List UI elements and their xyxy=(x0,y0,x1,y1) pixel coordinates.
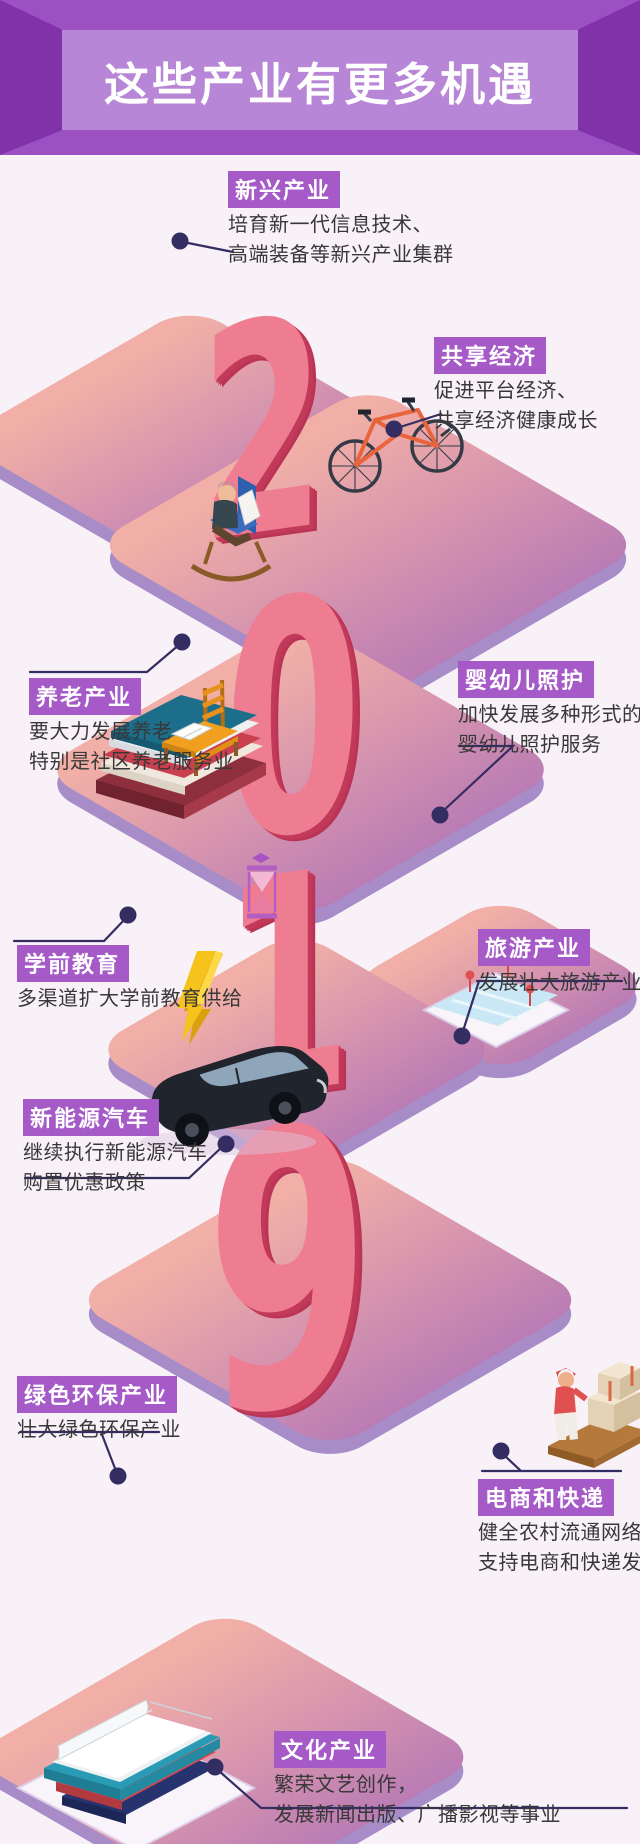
infographic-canvas: 这些产业有更多机遇 2 0 1 9 xyxy=(0,0,640,1844)
callout-title: 共享经济 xyxy=(434,337,546,374)
callout-title: 绿色环保产业 xyxy=(17,1376,177,1413)
callout-preschool-education: 学前教育 多渠道扩大学前教育供给 xyxy=(17,945,243,1012)
callout-emerging-industries: 新兴产业 培育新一代信息技术、 高端装备等新兴产业集群 xyxy=(228,171,454,268)
callout-title: 新兴产业 xyxy=(228,171,340,208)
callout-infant-care: 婴幼儿照护 加快发展多种形式的 婴幼儿照护服务 xyxy=(458,661,640,758)
header-banner: 这些产业有更多机遇 xyxy=(0,0,640,155)
callout-green-industry: 绿色环保产业 壮大绿色环保产业 xyxy=(17,1376,181,1443)
callout-desc-line: 高端装备等新兴产业集群 xyxy=(228,241,454,268)
callout-desc-line: 继续执行新能源汽车 xyxy=(23,1139,208,1166)
callout-title: 学前教育 xyxy=(17,945,129,982)
callout-tourism: 旅游产业 发展壮大旅游产业 xyxy=(478,929,640,996)
hourglass-icon xyxy=(247,853,277,916)
header-bevel-right xyxy=(578,0,640,155)
callout-desc-line: 共享经济健康成长 xyxy=(434,407,598,434)
callout-desc-line: 购置优惠政策 xyxy=(23,1169,208,1196)
callout-sharing-economy: 共享经济 促进平台经济、 共享经济健康成长 xyxy=(434,337,598,434)
callout-title: 新能源汽车 xyxy=(23,1099,159,1136)
callout-desc-line: 培育新一代信息技术、 xyxy=(228,211,454,238)
callout-desc-line: 发展壮大旅游产业 xyxy=(478,969,640,996)
header-inner-panel: 这些产业有更多机遇 xyxy=(62,30,578,130)
callout-title: 婴幼儿照护 xyxy=(458,661,594,698)
elderly-man-rocking-chair-icon xyxy=(192,476,270,579)
delivery-worker-boxes-icon xyxy=(548,1362,640,1468)
callout-cultural-industry: 文化产业 繁荣文艺创作， 发展新闻出版、广播影视等事业 xyxy=(274,1731,561,1828)
callout-desc-line: 健全农村流通网络， xyxy=(478,1519,640,1546)
callout-new-energy-vehicles: 新能源汽车 继续执行新能源汽车 购置优惠政策 xyxy=(23,1099,208,1196)
callout-elderly-care: 养老产业 要大力发展养老 特别是社区养老服务业 xyxy=(29,678,234,775)
callout-ecommerce-delivery: 电商和快递 健全农村流通网络， 支持电商和快递发展 xyxy=(478,1479,640,1576)
callout-title: 文化产业 xyxy=(274,1731,386,1768)
callout-desc-line: 支持电商和快递发展 xyxy=(478,1549,640,1576)
header-bevel-left xyxy=(0,0,62,155)
callout-title: 养老产业 xyxy=(29,678,141,715)
callout-desc-line: 特别是社区养老服务业 xyxy=(29,748,234,775)
callout-desc-line: 繁荣文艺创作， xyxy=(274,1771,561,1798)
callout-desc-line: 加快发展多种形式的 xyxy=(458,701,640,728)
callout-title: 旅游产业 xyxy=(478,929,590,966)
callout-desc-line: 婴幼儿照护服务 xyxy=(458,731,640,758)
callout-desc-line: 要大力发展养老 xyxy=(29,718,234,745)
callout-desc-line: 促进平台经济、 xyxy=(434,377,598,404)
callout-desc-line: 壮大绿色环保产业 xyxy=(17,1416,181,1443)
callout-title: 电商和快递 xyxy=(478,1479,614,1516)
callout-desc-line: 多渠道扩大学前教育供给 xyxy=(17,985,243,1012)
callout-desc-line: 发展新闻出版、广播影视等事业 xyxy=(274,1801,561,1828)
page-title: 这些产业有更多机遇 xyxy=(104,48,536,113)
